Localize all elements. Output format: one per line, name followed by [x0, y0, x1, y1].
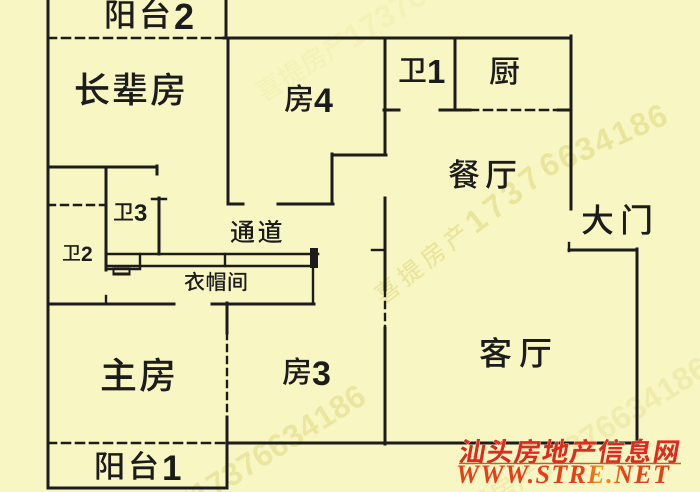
svg-text:4: 4: [314, 82, 333, 120]
svg-text:1: 1: [427, 53, 445, 90]
svg-text:3: 3: [312, 355, 331, 393]
svg-text:WWW.STRE.NET: WWW.STRE.NET: [456, 460, 670, 489]
svg-text:3: 3: [134, 200, 147, 227]
svg-text:2: 2: [174, 0, 194, 37]
svg-text:1: 1: [162, 449, 181, 488]
svg-text:2: 2: [81, 243, 93, 266]
